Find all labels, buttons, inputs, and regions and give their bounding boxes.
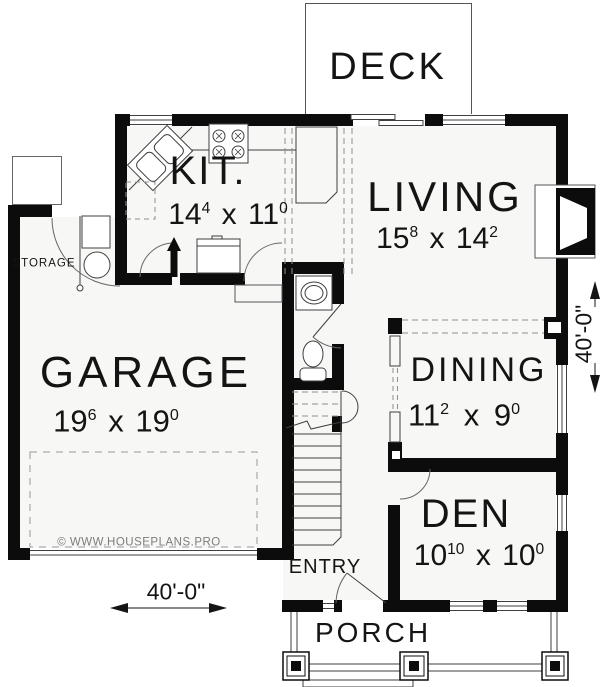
entry-label: ENTRY <box>289 557 361 577</box>
living-label: LIVING <box>367 176 523 218</box>
width-dimension-text: 40'-0" <box>147 581 206 604</box>
den-front-window-1 <box>450 600 483 612</box>
hall-door-swing <box>244 243 282 281</box>
vanity-sink <box>296 276 332 310</box>
porch-column-left <box>283 652 309 680</box>
dining-cased-opening <box>390 320 561 459</box>
utility-unit <box>82 216 110 248</box>
floor-plan: DECK KIT. 144 x 110 LIVING 158 x 142 GAR… <box>0 0 600 687</box>
dining-label: DINING <box>411 353 548 387</box>
kitchen-island <box>197 236 240 273</box>
deck-label: DECK <box>329 48 447 86</box>
den-front-window-2 <box>497 600 527 612</box>
porch-steps <box>303 680 413 687</box>
storage-label: STORAGE <box>12 258 75 270</box>
kitchen-door <box>140 237 181 277</box>
depth-dimension-text: 40'-0" <box>573 305 596 364</box>
plan-linework <box>0 0 600 687</box>
garage-dimensions: 196 x 190 <box>53 406 179 437</box>
living-dimensions: 158 x 142 <box>376 224 498 254</box>
fireplace <box>535 185 595 258</box>
kitchen-window <box>130 114 172 126</box>
porch-column-right <box>542 652 568 680</box>
dining-dimensions: 112 x 90 <box>408 400 520 431</box>
kitchen-label: KIT. <box>170 151 247 191</box>
toilet <box>300 341 326 381</box>
water-heater <box>84 252 110 278</box>
porch-label: PORCH <box>315 619 431 647</box>
garage-label: GARAGE <box>40 351 252 395</box>
powder-door <box>313 304 341 348</box>
kitchen-dimensions: 144 x 110 <box>168 200 288 230</box>
dining-window <box>556 365 568 433</box>
den-dimensions: 1010 x 100 <box>414 541 544 571</box>
watermark: © WWW.HOUSEPLANS.PRO <box>57 537 221 549</box>
staircase <box>286 391 341 545</box>
storage-equipment <box>77 216 110 291</box>
stair-door-swing <box>342 391 358 423</box>
pantry-counter <box>235 285 282 302</box>
den-label: DEN <box>421 494 511 534</box>
porch-column-middle <box>400 652 428 680</box>
deck-sliding-door <box>351 114 425 126</box>
entry-sidelite <box>323 604 334 609</box>
width-dimension-arrow <box>110 603 227 613</box>
living-window <box>443 114 505 126</box>
den-side-window <box>556 495 568 531</box>
